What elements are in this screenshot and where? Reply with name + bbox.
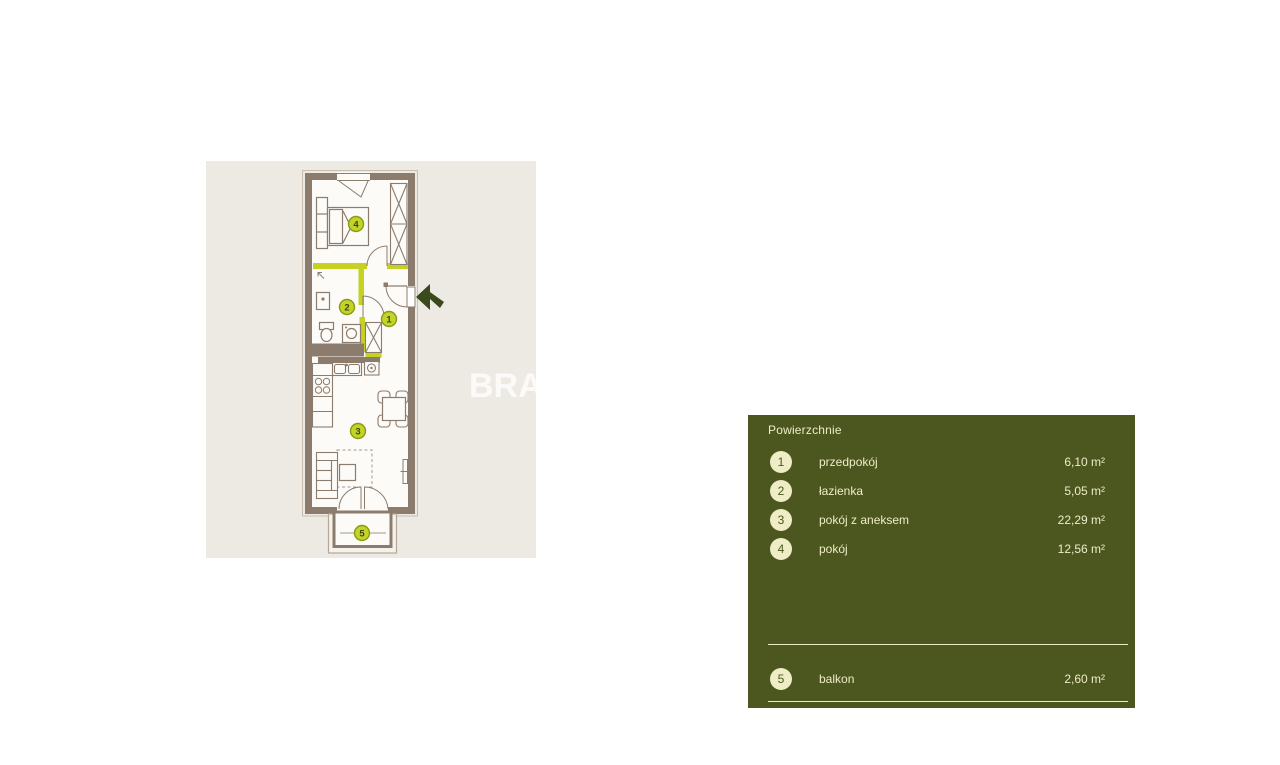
svg-text:2: 2 bbox=[344, 302, 349, 313]
room-marker-2: 2 bbox=[340, 300, 355, 315]
room-marker-3: 3 bbox=[351, 424, 366, 439]
hallway-closet bbox=[366, 323, 382, 353]
coffee-table bbox=[340, 465, 356, 481]
room-number-badge: 5 bbox=[770, 668, 792, 690]
legend-row-pokoj: 4 pokój 12,56 m² bbox=[748, 534, 1135, 563]
room-marker-1: 1 bbox=[382, 312, 397, 327]
legend-separator bbox=[768, 644, 1128, 645]
legend-row-balkon: 5 balkon 2,60 m² bbox=[748, 664, 1135, 693]
room-number-badge: 4 bbox=[770, 538, 792, 560]
svg-text:1: 1 bbox=[386, 314, 392, 325]
room-label: balkon bbox=[819, 672, 854, 686]
legend-bottom-line bbox=[768, 701, 1128, 702]
svg-text:5: 5 bbox=[359, 528, 365, 539]
room-area: 5,05 m² bbox=[1064, 484, 1105, 498]
sofa bbox=[317, 453, 338, 499]
svg-text:3: 3 bbox=[355, 426, 360, 437]
legend-row-przedpokoj: 1 przedpokój 6,10 m² bbox=[748, 447, 1135, 476]
floor-plan: 1 2 3 4 5 BRA bbox=[206, 161, 536, 558]
room-label: przedpokój bbox=[819, 455, 878, 469]
legend-row-lazienka: 2 łazienka 5,05 m² bbox=[748, 476, 1135, 505]
room-area: 12,56 m² bbox=[1058, 542, 1105, 556]
dining-table bbox=[383, 398, 406, 421]
room-area: 6,10 m² bbox=[1064, 455, 1105, 469]
legend-title: Powierzchnie bbox=[768, 423, 842, 437]
kitchen-counter bbox=[313, 364, 333, 428]
room-number-badge: 3 bbox=[770, 509, 792, 531]
room-label: pokój bbox=[819, 542, 848, 556]
watermark: BRA bbox=[469, 367, 536, 405]
oven bbox=[365, 362, 380, 376]
room-number-badge: 1 bbox=[770, 451, 792, 473]
room-label: łazienka bbox=[819, 484, 863, 498]
legend-panel: Powierzchnie 1 przedpokój 6,10 m² 2 łazi… bbox=[748, 415, 1135, 708]
toilet bbox=[320, 323, 334, 342]
legend-row-pokoj-z-aneksem: 3 pokój z aneksem 22,29 m² bbox=[748, 505, 1135, 534]
room-area: 2,60 m² bbox=[1064, 672, 1105, 686]
legend-rows: 1 przedpokój 6,10 m² 2 łazienka 5,05 m² … bbox=[748, 447, 1135, 563]
bathroom-sink bbox=[317, 293, 330, 310]
washing-machine bbox=[343, 325, 361, 343]
svg-text:4: 4 bbox=[353, 219, 359, 230]
room-label: pokój z aneksem bbox=[819, 513, 909, 527]
kitchen-sink bbox=[333, 363, 362, 376]
nightstand bbox=[317, 198, 328, 249]
room-marker-5: 5 bbox=[355, 526, 370, 541]
room-marker-4: 4 bbox=[349, 217, 364, 232]
wardrobe bbox=[391, 184, 408, 265]
room-number-badge: 2 bbox=[770, 480, 792, 502]
room-area: 22,29 m² bbox=[1058, 513, 1105, 527]
